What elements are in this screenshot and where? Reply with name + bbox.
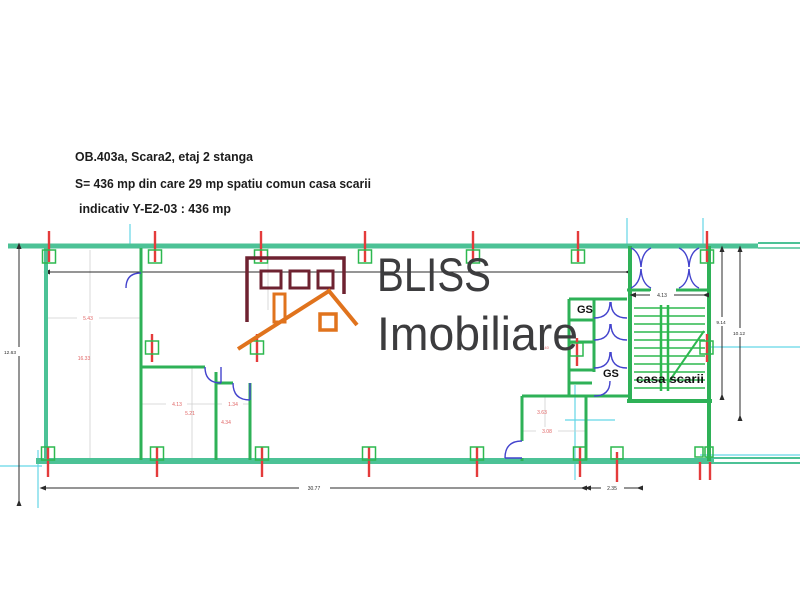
- door-arc: [611, 324, 627, 340]
- dim-stair-height: 9.14: [716, 320, 726, 326]
- title-block: OB.403a, Scara2, etaj 2 stanga S= 436 mp…: [75, 150, 371, 216]
- double-door-arc: [689, 248, 699, 267]
- double-door-arc: [631, 248, 641, 267]
- logo-name: BLISS: [377, 248, 491, 301]
- floor-plan-page: OB.403a, Scara2, etaj 2 stanga S= 436 mp…: [0, 0, 800, 600]
- plan-title: OB.403a, Scara2, etaj 2 stanga: [75, 150, 254, 164]
- door-arc: [594, 352, 610, 368]
- logo-subname: Imobiliare: [377, 307, 578, 360]
- dim-niche-width: 1.34: [228, 402, 238, 408]
- double-door-arc: [679, 248, 689, 267]
- plan-indicative: indicativ Y-E2-03 : 436 mp: [79, 202, 231, 216]
- logo-wordmark: BLISS Imobiliare: [377, 248, 578, 360]
- double-door-arc: [679, 269, 689, 288]
- double-door-arc: [689, 269, 699, 288]
- dim-right-height: 10.12: [733, 331, 745, 337]
- door-arc: [233, 383, 250, 400]
- room-label-gs-lower: GS: [603, 368, 619, 380]
- dim-room-height: 3.08: [542, 429, 552, 435]
- double-door-arc: [641, 248, 651, 267]
- dim-storage-width: 4.13: [172, 402, 182, 408]
- door-arc: [205, 367, 221, 383]
- dim-storage-height: 5.21: [185, 411, 195, 417]
- door-arc: [594, 302, 610, 318]
- bliss-logo: BLISS Imobiliare: [238, 248, 578, 360]
- dim-stair-width: 4.13: [657, 293, 667, 299]
- dim-overall-width: 30.77: [308, 486, 321, 492]
- dim-left-height: 12.63: [4, 350, 16, 356]
- double-door-arc: [641, 269, 651, 288]
- floor-plan-drawing: OB.403a, Scara2, etaj 2 stanga S= 436 mp…: [0, 0, 800, 600]
- door-arc: [611, 352, 627, 368]
- dim-right-offset: 2.35: [607, 486, 617, 492]
- room-label-gs-upper: GS: [577, 304, 593, 316]
- dim-left-bay: 5.43: [83, 316, 93, 322]
- double-door-arc: [631, 269, 641, 288]
- plan-area-note: S= 436 mp din care 29 mp spatiu comun ca…: [75, 177, 371, 191]
- door-arc: [505, 441, 522, 458]
- dim-left-room: 16.33: [78, 356, 91, 362]
- door-arc: [126, 273, 141, 288]
- room-label-staircase: casa scarii: [636, 374, 704, 386]
- dim-room-width: 3.63: [537, 410, 547, 416]
- dim-niche-height: 4.34: [221, 420, 231, 426]
- door-arc: [611, 302, 627, 318]
- door-arc: [594, 324, 610, 340]
- door-arc: [594, 381, 610, 396]
